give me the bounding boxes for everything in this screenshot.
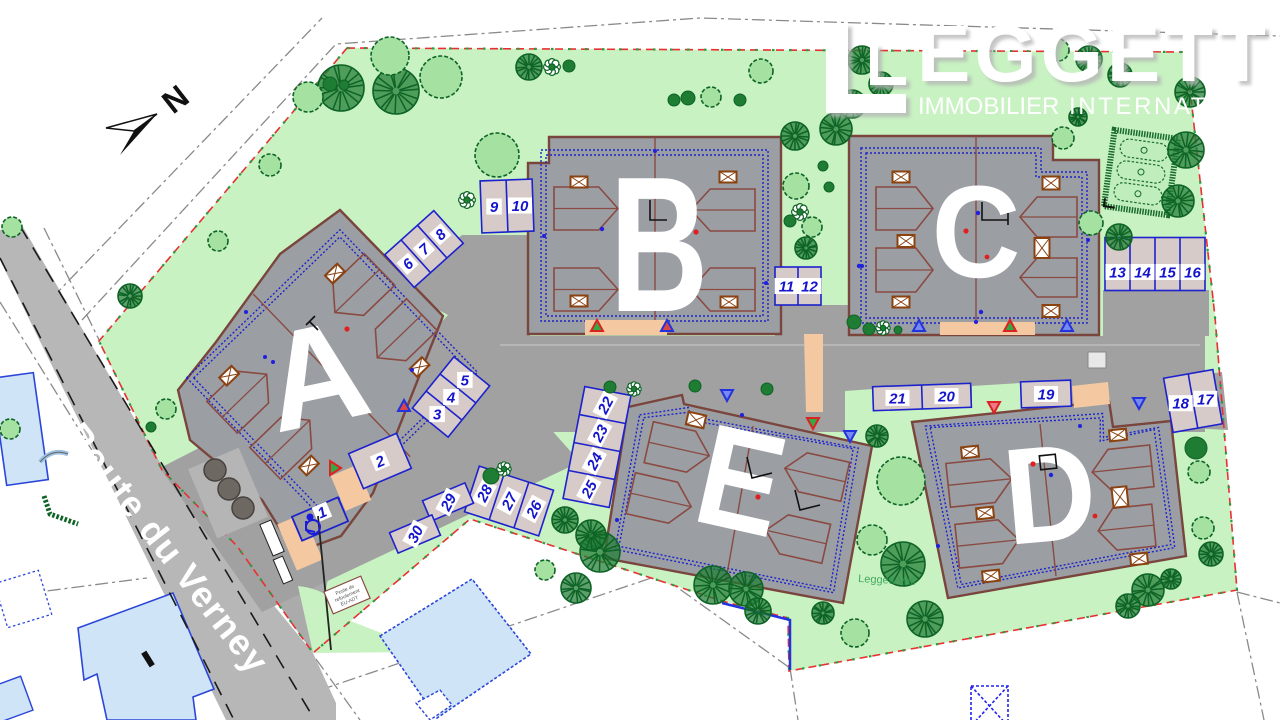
svg-text:IMMOBILIER: IMMOBILIER xyxy=(918,93,1059,120)
svg-text:D: D xyxy=(997,414,1102,575)
svg-text:13: 13 xyxy=(1109,265,1126,282)
svg-text:21: 21 xyxy=(888,390,906,407)
svg-text:10: 10 xyxy=(512,198,529,215)
svg-text:C: C xyxy=(932,158,1021,304)
svg-text:20: 20 xyxy=(937,389,955,406)
svg-text:3: 3 xyxy=(433,407,442,424)
svg-text:19: 19 xyxy=(1038,387,1055,404)
svg-text:15: 15 xyxy=(1159,265,1176,282)
svg-text:16: 16 xyxy=(1184,265,1201,282)
svg-text:INTERNATIONAL: INTERNATIONAL xyxy=(1069,93,1280,120)
svg-text:14: 14 xyxy=(1134,265,1151,282)
svg-text:B: B xyxy=(610,138,709,353)
svg-text:12: 12 xyxy=(801,279,818,296)
svg-text:18: 18 xyxy=(1172,396,1189,413)
svg-text:11: 11 xyxy=(779,279,795,296)
svg-text:5: 5 xyxy=(461,372,470,389)
svg-text:17: 17 xyxy=(1197,391,1214,408)
svg-text:9: 9 xyxy=(490,199,499,216)
svg-text:EGGETT: EGGETT xyxy=(917,9,1270,98)
svg-text:4: 4 xyxy=(446,390,456,407)
